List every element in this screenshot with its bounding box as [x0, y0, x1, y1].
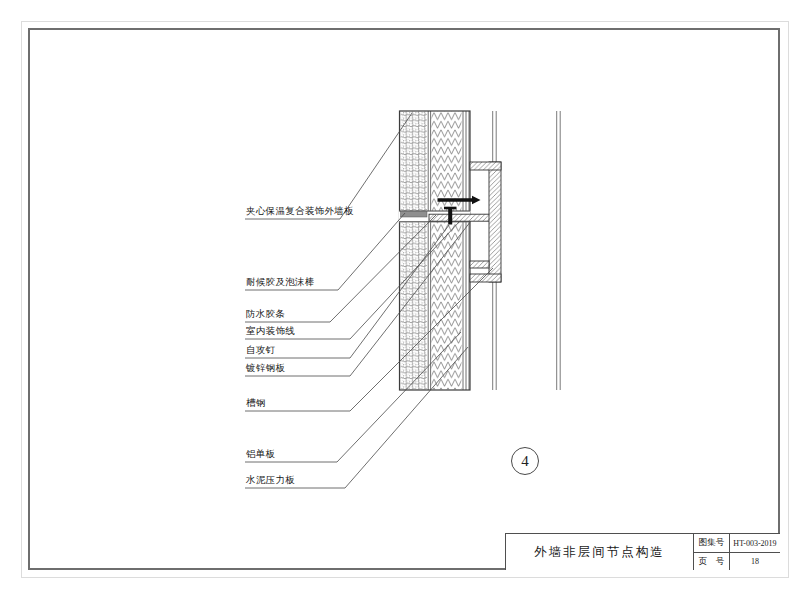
callout-weather-sealant-foam-rod: 耐候胶及泡沫棒 [246, 277, 315, 288]
structure-grid-lines [493, 111, 561, 390]
drawing-sheet: 夹心保温复合装饰外墙板 耐候胶及泡沫棒 防水胶条 室内装饰线 自攻钉 镀锌钢板 … [0, 0, 800, 600]
drawing-title: 外墙非层间节点构造 [506, 534, 693, 570]
sandwich-panel-section [400, 111, 471, 390]
callout-cement-pressure-board: 水泥压力板 [246, 475, 295, 486]
callout-galvanized-steel-plate: 镀锌钢板 [246, 363, 285, 374]
page-number-row: 页 号 18 [694, 552, 780, 570]
atlas-number-row: 图集号 HT-003-2019 [694, 534, 780, 552]
callout-sandwich-insulated-panel: 夹心保温复合装饰外墙板 [246, 206, 354, 217]
title-block: 外墙非层间节点构造 图集号 HT-003-2019 页 号 18 [505, 533, 780, 570]
callout-self-tapping-screw: 自攻钉 [246, 345, 275, 356]
callout-interior-trim-line: 室内装饰线 [246, 326, 295, 337]
galvanized-steel-plate [429, 214, 490, 221]
channel-steel-bracket [470, 162, 501, 282]
detail-number-badge: 4 [511, 447, 539, 475]
atlas-number-label: 图集号 [694, 534, 729, 552]
title-block-fields: 图集号 HT-003-2019 页 号 18 [693, 534, 780, 570]
page-number-value: 18 [729, 553, 780, 570]
callout-channel-steel: 槽钢 [246, 398, 266, 409]
callout-waterproof-rubber-strip: 防水胶条 [246, 309, 285, 320]
atlas-number-value: HT-003-2019 [729, 534, 780, 552]
page-number-label: 页 号 [694, 553, 729, 570]
callout-aluminum-panel: 铝单板 [246, 449, 275, 460]
wall-section-drawing [0, 0, 800, 600]
sealant-foam-rod [401, 212, 428, 218]
detail-number: 4 [521, 453, 529, 470]
panel-joint [399, 211, 490, 222]
